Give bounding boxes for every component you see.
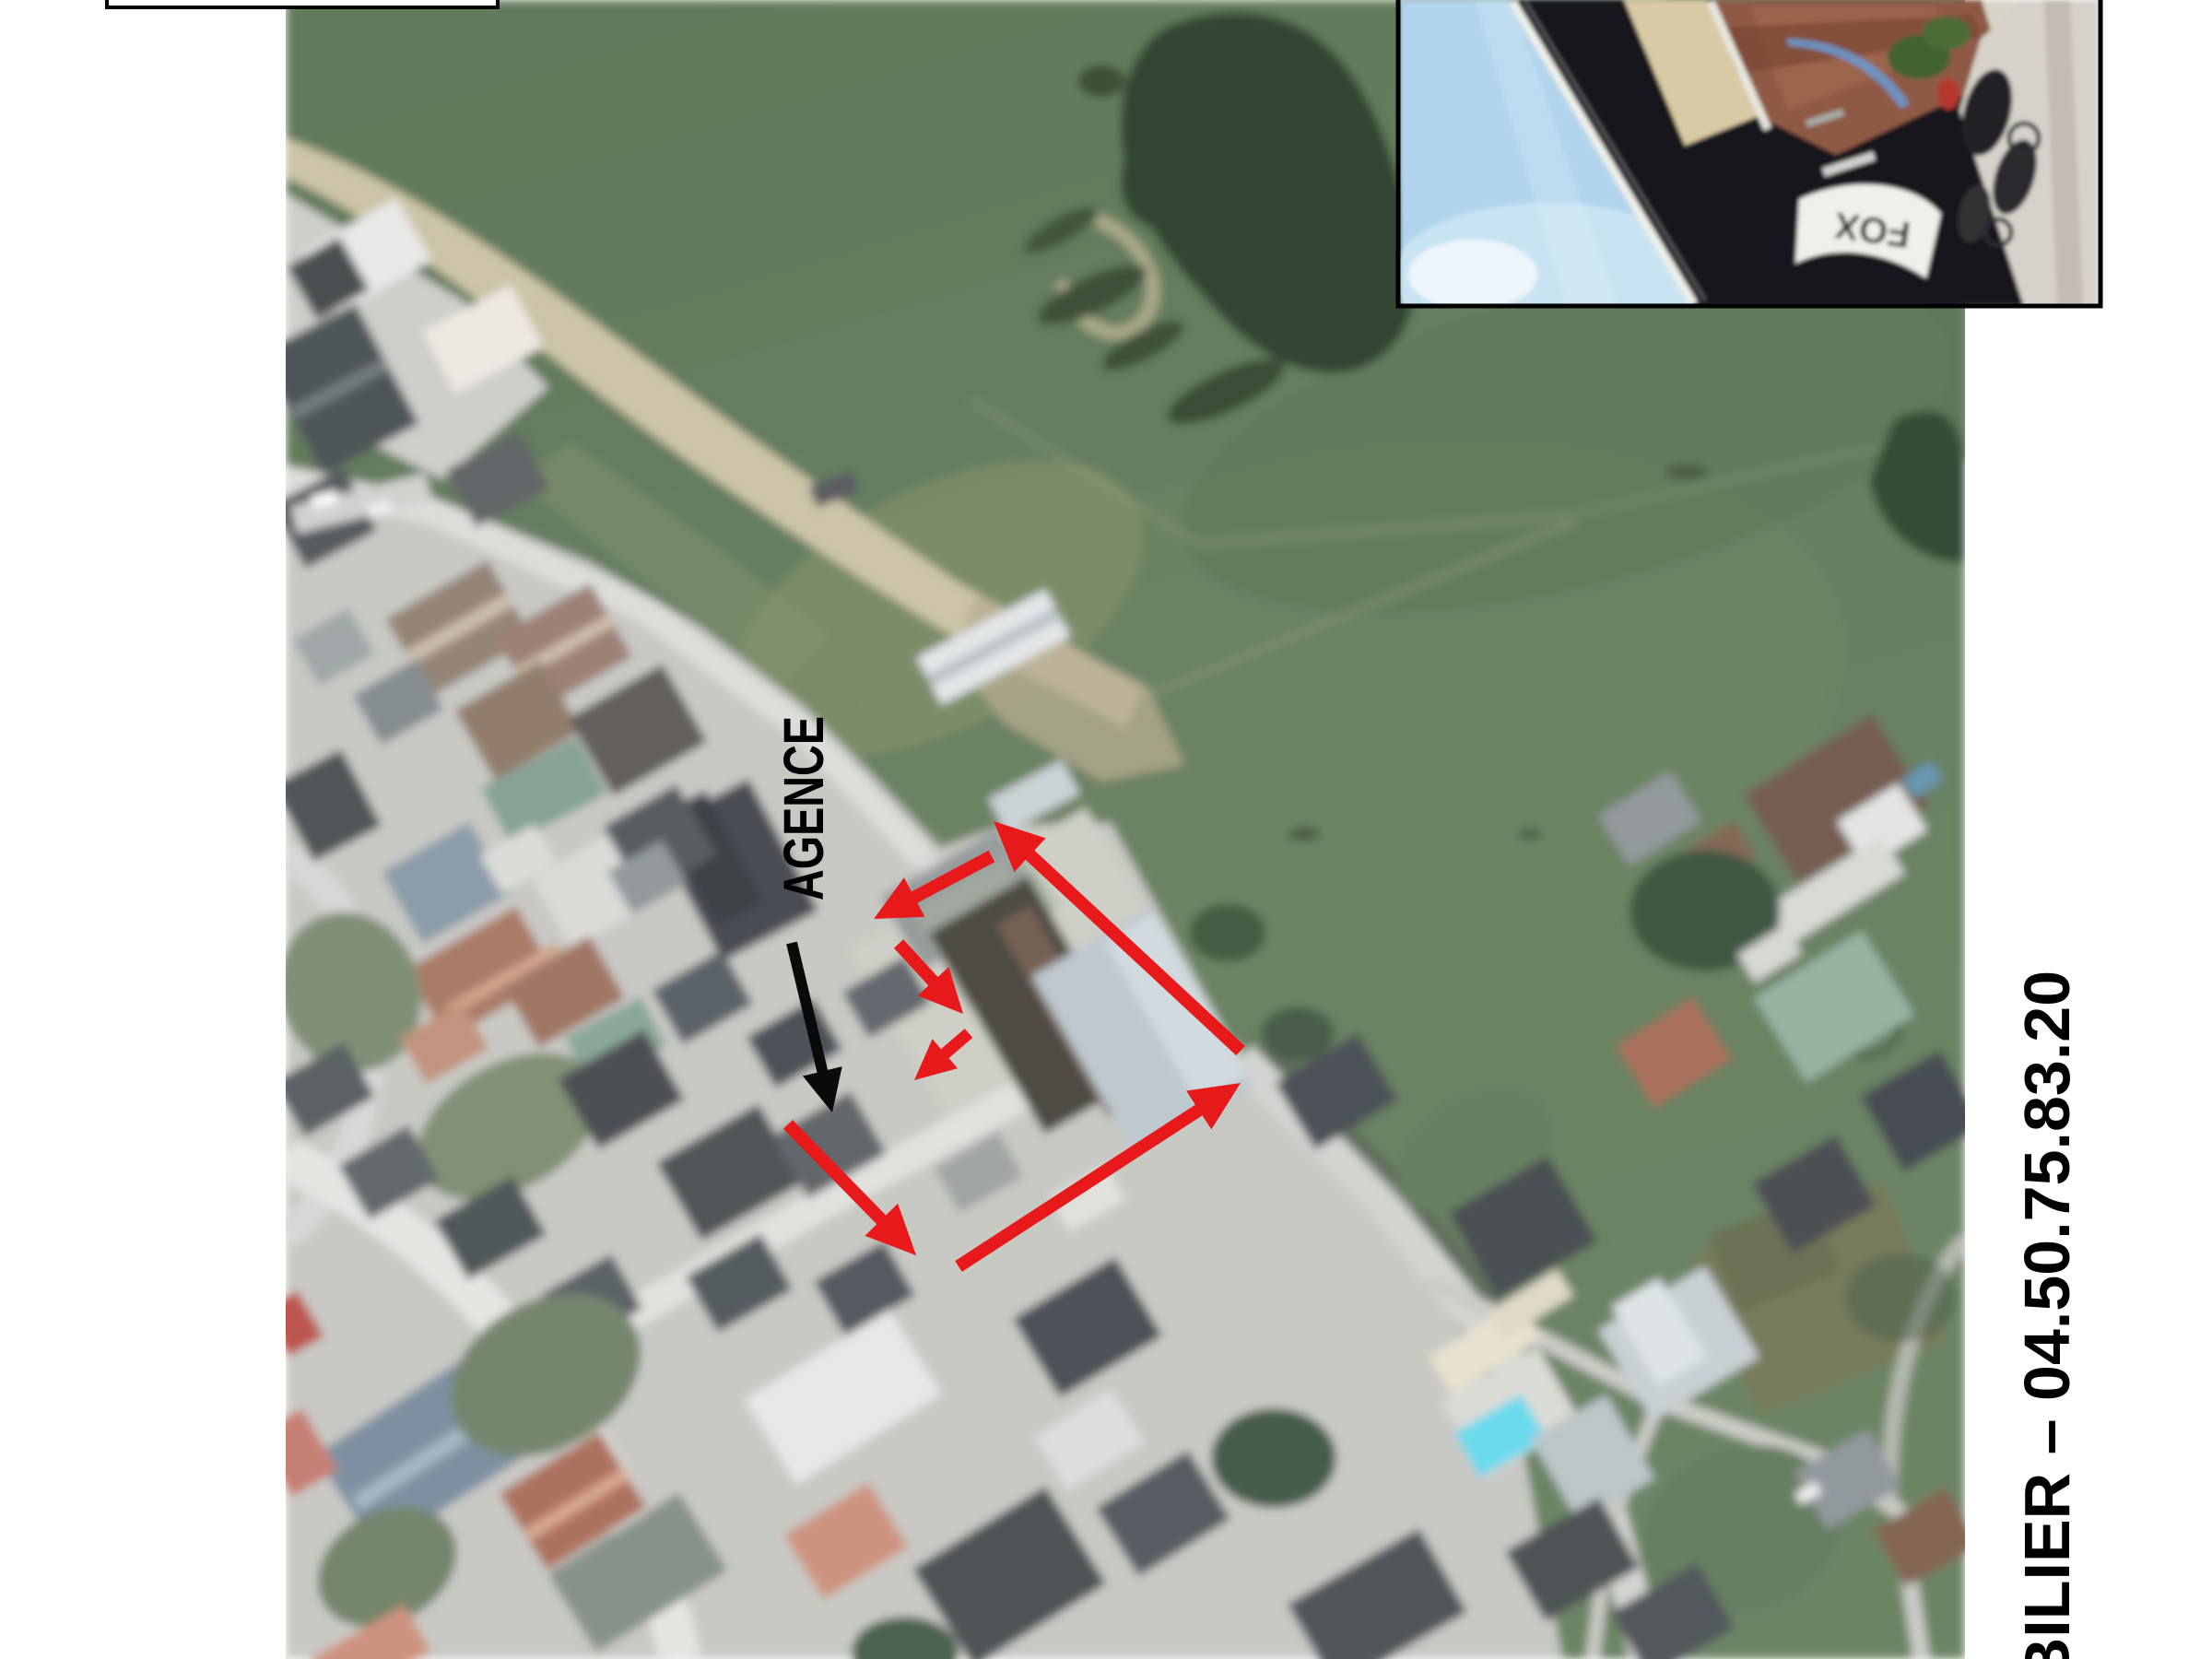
svg-text:MOBILIER – 04.50.75.83.20: MOBILIER – 04.50.75.83.20 bbox=[2011, 971, 2083, 1659]
svg-text:AGENCE: AGENCE bbox=[772, 716, 835, 900]
